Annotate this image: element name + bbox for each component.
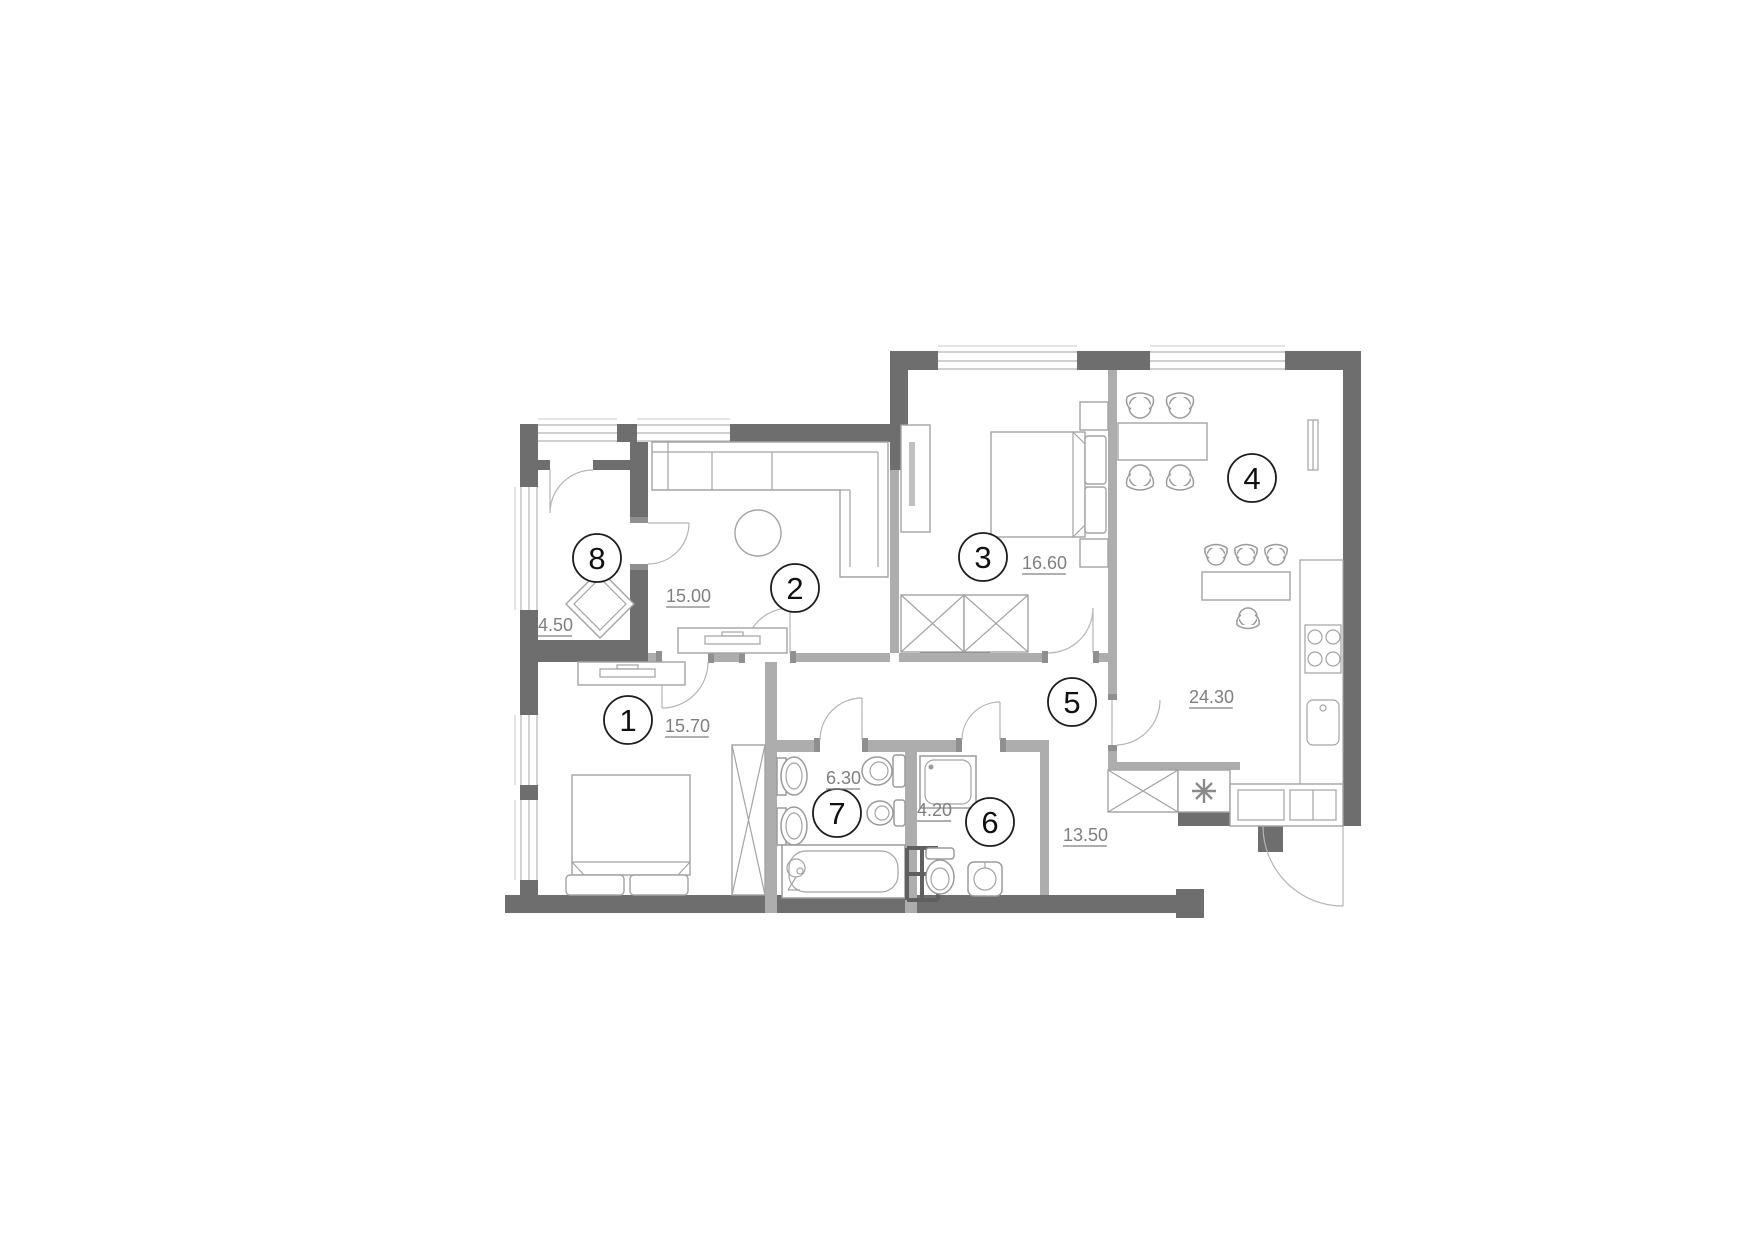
door-icon [648, 523, 689, 564]
room-area: 15.70 [665, 716, 710, 736]
room-number: 5 [1063, 685, 1080, 720]
coffee-table-icon [735, 510, 781, 556]
door-icon [550, 470, 593, 513]
counter-sink-icon [1230, 784, 1343, 826]
furniture-bedroom-1 [566, 662, 765, 895]
room-number: 1 [619, 703, 636, 738]
room-label-3: 316.60 [959, 533, 1067, 581]
window-icon [515, 487, 538, 610]
window-icon [938, 346, 1077, 370]
room-area: 4.20 [917, 800, 952, 820]
tv-stand-icon [678, 628, 787, 653]
tv-stand-icon [901, 425, 930, 532]
room-number: 6 [981, 805, 998, 840]
sink-icon [777, 757, 807, 795]
room-label-1: 115.70 [604, 696, 710, 744]
door-icon [1048, 608, 1093, 653]
bathtub-icon [782, 845, 905, 898]
furniture-bedroom-3 [901, 402, 1108, 652]
room-area: 15.00 [666, 586, 711, 606]
sink-icon [1307, 700, 1339, 745]
tv-stand-icon [578, 662, 685, 685]
furniture-kitchen [1108, 393, 1343, 826]
nightstand-icon [1080, 539, 1108, 567]
door-icon [1112, 700, 1160, 745]
room-area: 4.50 [538, 615, 573, 635]
window-icon [515, 715, 538, 785]
wardrobe-icon [901, 595, 1028, 652]
room-number: 4 [1243, 461, 1260, 496]
nightstand-icon [1080, 402, 1108, 430]
floor-plan-page: 115.70215.00316.60424.30513.5064.2076.30… [0, 0, 1754, 1240]
room-area: 6.30 [826, 768, 861, 788]
door-icon [962, 702, 1000, 740]
window-icon [637, 419, 730, 442]
toilet-icon [926, 848, 954, 894]
sink-icon [968, 862, 1002, 896]
sofa-icon [652, 442, 888, 577]
window-icon [538, 419, 617, 442]
bidet-icon [867, 800, 905, 826]
kitchen-counter-icon [1300, 560, 1343, 790]
dining-table-icon [1118, 393, 1207, 490]
radiator-icon [1308, 420, 1318, 470]
bar-counter-icon [1202, 545, 1290, 629]
room-label-2: 215.00 [666, 564, 819, 612]
wardrobe-icon [732, 745, 765, 895]
window-icon [515, 800, 538, 880]
room-number: 8 [588, 541, 605, 576]
room-number: 3 [974, 540, 991, 575]
furniture-living-room [652, 442, 888, 653]
room-area: 24.30 [1189, 687, 1234, 707]
toilet-icon [862, 755, 905, 787]
door-icon [820, 698, 862, 740]
room-area: 13.50 [1063, 825, 1108, 845]
room-number: 7 [828, 796, 845, 831]
bed-icon [566, 775, 690, 895]
stove-icon [1305, 625, 1341, 673]
floor-plan: 115.70215.00316.60424.30513.5064.2076.30… [0, 0, 1754, 1240]
room-label-5: 513.50 [1048, 678, 1108, 846]
room-area: 16.60 [1022, 553, 1067, 573]
bed-icon [991, 432, 1106, 537]
room-label-7: 76.30 [813, 768, 861, 837]
window-icon [1150, 346, 1285, 370]
room-number: 2 [786, 571, 803, 606]
sink-icon [777, 807, 807, 845]
